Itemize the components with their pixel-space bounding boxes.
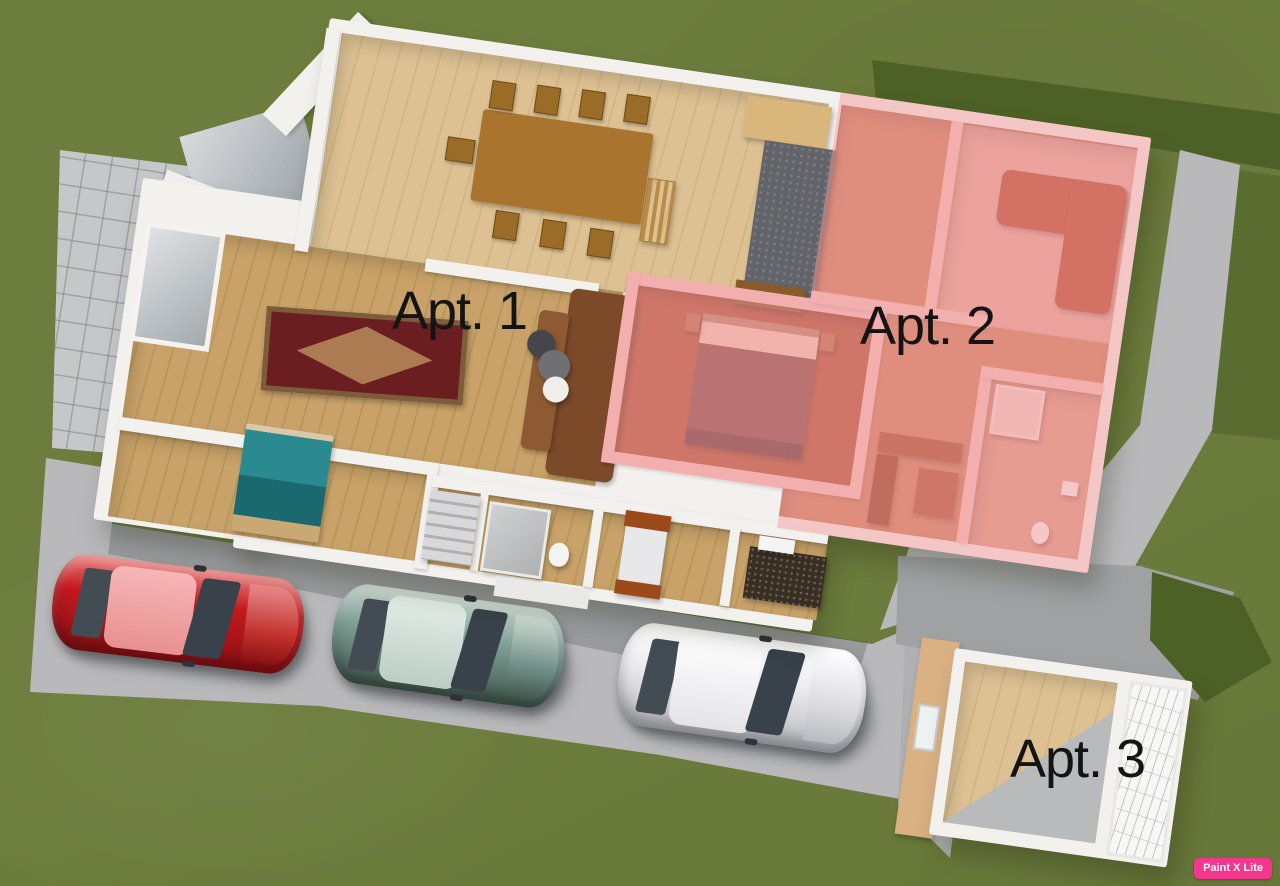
corner-window [129, 222, 225, 352]
teal-car-mirror [464, 595, 478, 603]
shower-stall [480, 501, 551, 579]
dining-chair [539, 219, 567, 250]
dining-chair [492, 210, 520, 241]
dining-chair [586, 228, 614, 259]
dining-chair [623, 94, 651, 125]
dining-chair [489, 80, 517, 111]
white-car-mirror [759, 635, 773, 643]
teal-car-hood [504, 614, 564, 702]
apt3-label: Apt. 3 [1010, 728, 1145, 790]
apt2-label: Apt. 2 [860, 295, 995, 357]
teal-bed [231, 423, 334, 543]
paint-x-lite-watermark: Paint X Lite [1194, 858, 1272, 879]
staircase [421, 490, 481, 566]
dining-chair [534, 85, 562, 116]
apt2-highlight-overlay-bedroom [601, 272, 811, 489]
floor-plan-scene: Apt. 1 Apt. 2 Apt. 3 Paint X Lite [0, 0, 1280, 886]
dining-chair [578, 89, 606, 120]
red-car-roof [103, 564, 198, 656]
white-car-hood [802, 655, 865, 747]
entry-doormat [743, 546, 828, 609]
washing-machine [618, 526, 668, 587]
dining-chair [445, 136, 476, 164]
red-car-hood [241, 583, 303, 668]
apt1-label: Apt. 1 [392, 280, 527, 342]
red-car-mirror [193, 565, 207, 573]
